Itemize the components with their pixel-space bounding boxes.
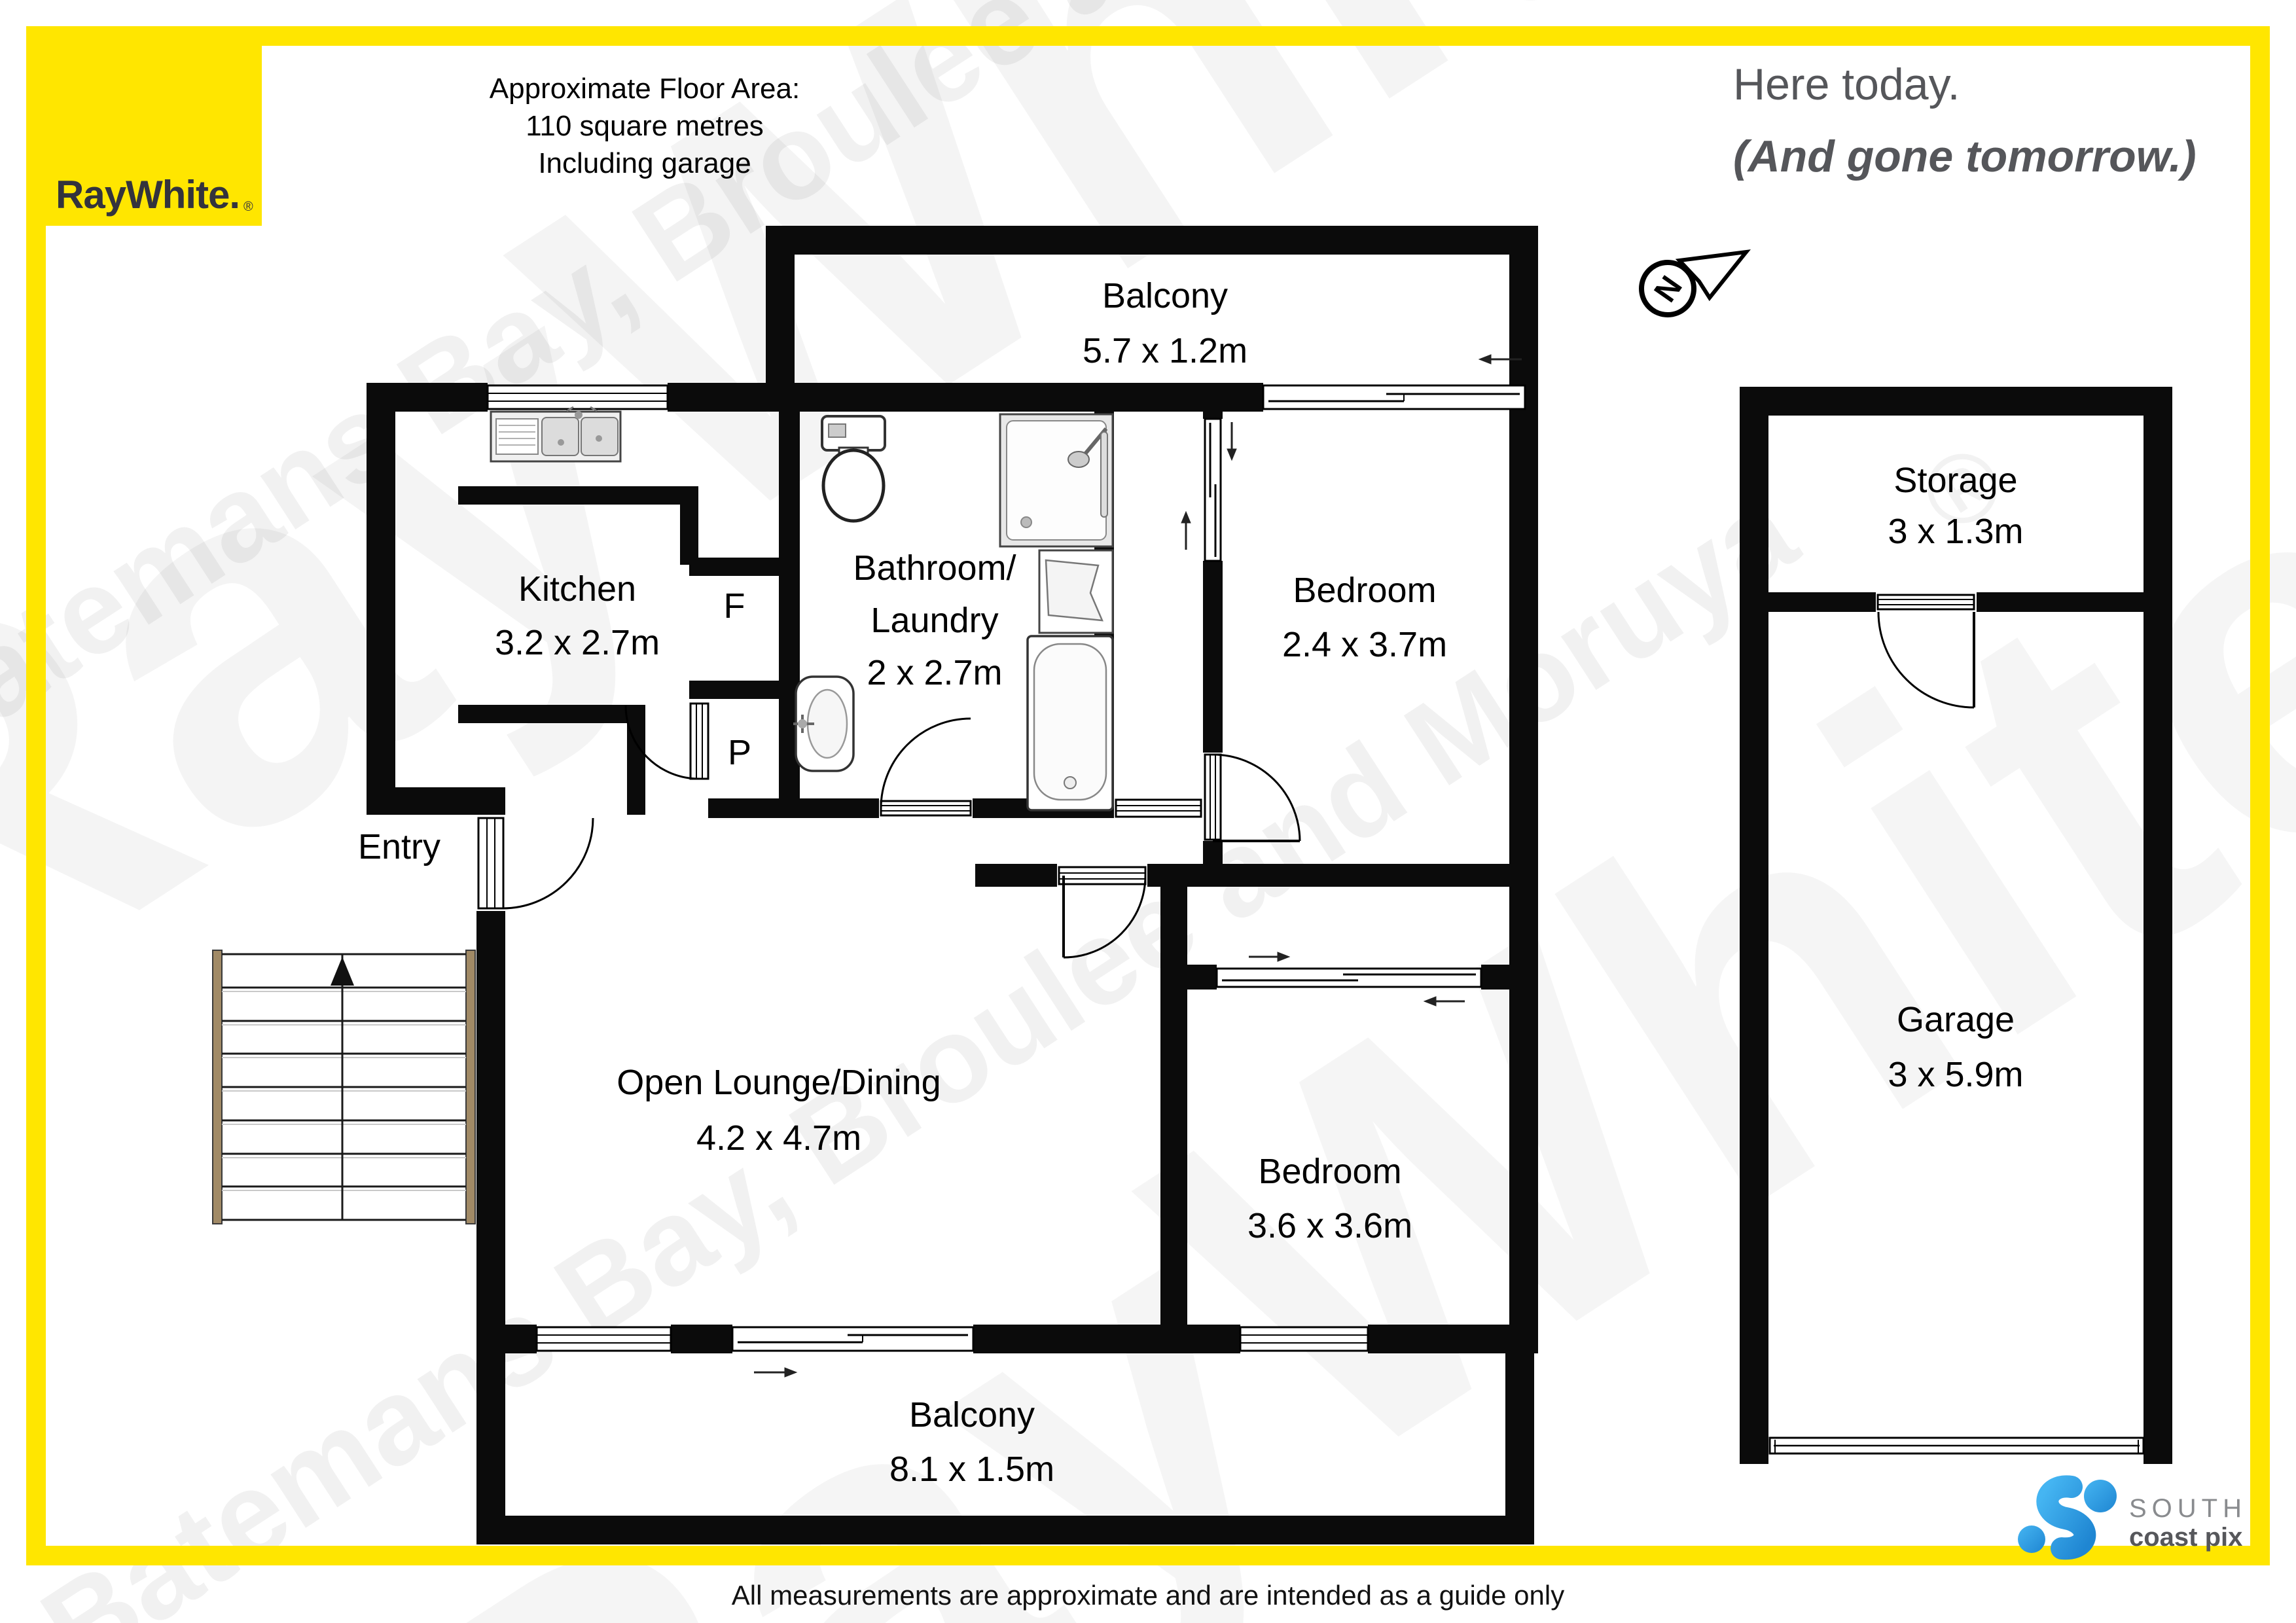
room-dims-kitchen: 3.2 x 2.7m <box>495 623 660 662</box>
wall <box>779 383 1263 412</box>
photo-credit-word1: SOUTH <box>2129 1494 2247 1523</box>
sliding-door-balcony-bottom-icon <box>732 1327 973 1351</box>
kitchen-sink-icon <box>491 407 620 461</box>
room-label-balcony-top: Balcony <box>1102 276 1228 315</box>
laundry-trough-icon <box>1039 550 1113 633</box>
disclaimer-text: All measurements are approximate and are… <box>732 1580 1564 1611</box>
room-dims-bedroom2: 3.6 x 3.6m <box>1247 1206 1412 1245</box>
wall <box>680 486 698 565</box>
wall <box>1509 404 1538 1353</box>
wall <box>800 798 879 818</box>
logo-s-icon <box>2047 1486 2085 1548</box>
wall <box>367 383 395 815</box>
wall <box>458 486 698 505</box>
wall <box>973 1325 1240 1353</box>
tagline-line1: Here today. <box>1733 60 1960 109</box>
south-coast-pix-logo: SOUTH coast pix <box>2018 1480 2247 1553</box>
ray-white-logo-text: RayWhite. <box>56 173 240 217</box>
wall <box>1147 864 1538 887</box>
sliding-robe-bedroom2-icon <box>1217 969 1481 987</box>
wall <box>708 798 779 818</box>
room-dims-bathroom: 2 x 2.7m <box>867 653 1002 692</box>
floor-area-note: Including garage <box>538 147 751 179</box>
room-dims-garage: 3 x 5.9m <box>1888 1055 2023 1094</box>
room-label-bathroom-2: Laundry <box>870 601 998 640</box>
room-label-bedroom2: Bedroom <box>1258 1152 1401 1191</box>
wall <box>766 226 1538 255</box>
wall <box>476 911 505 1353</box>
sliding-robe-bedroom1-icon <box>1205 419 1221 561</box>
room-dims-bedroom1: 2.4 x 3.7m <box>1282 625 1447 664</box>
compass-icon: N <box>1641 252 1746 315</box>
wall <box>1740 387 1768 1464</box>
wall <box>1740 1435 1768 1464</box>
shower-icon <box>1000 414 1113 546</box>
window-bedroom2-icon <box>1240 1327 1368 1351</box>
wall <box>975 864 1057 887</box>
wall <box>627 723 645 815</box>
wall <box>671 1325 732 1353</box>
room-dims-balcony-top: 5.7 x 1.2m <box>1083 331 1247 370</box>
stairs-up-arrow-icon <box>331 957 354 986</box>
wall <box>1481 965 1509 990</box>
garage-door-icon <box>1770 1438 2144 1454</box>
room-label-kitchen: Kitchen <box>518 569 636 609</box>
floor-area-label: Approximate Floor Area: <box>490 73 800 105</box>
room-label-storage: Storage <box>1893 461 2017 500</box>
entry-door-icon <box>478 818 593 908</box>
wall <box>476 1516 1534 1544</box>
wall <box>1505 1353 1534 1544</box>
arrow-right-robe-icon <box>1249 952 1289 961</box>
tagline-line2: (And gone tomorrow.) <box>1733 132 2197 181</box>
wall <box>1203 404 1223 419</box>
room-dims-lounge: 4.2 x 4.7m <box>696 1118 861 1158</box>
wall <box>1977 592 2172 612</box>
registered-mark: ® <box>243 200 253 214</box>
room-label-entry: Entry <box>358 827 440 866</box>
logo-dot-icon <box>2018 1525 2045 1553</box>
ray-white-logo: RayWhite. ® <box>36 26 262 226</box>
room-label-balcony-bottom: Balcony <box>909 1395 1035 1435</box>
photo-credit-word2: coast pix <box>2129 1523 2242 1552</box>
room-dims-balcony-bottom: 8.1 x 1.5m <box>889 1450 1054 1489</box>
sliding-door-balcony-top-icon <box>1263 385 1525 409</box>
fridge-label: F <box>724 586 745 626</box>
wall <box>476 1325 537 1353</box>
wall <box>2144 1435 2172 1464</box>
wall <box>1187 965 1217 990</box>
wall <box>1368 1325 1538 1353</box>
room-label-garage: Garage <box>1897 1000 2015 1039</box>
wall <box>1740 592 1876 612</box>
wall <box>1160 887 1187 1325</box>
wall <box>458 705 645 723</box>
wall <box>668 383 779 412</box>
stairs <box>213 950 475 1224</box>
wall <box>367 787 505 815</box>
bathroom-door-icon <box>881 719 971 815</box>
toilet-icon <box>822 416 885 521</box>
arrow-up-icon <box>1181 512 1191 550</box>
bathtub-icon <box>1028 636 1113 810</box>
room-label-bedroom1: Bedroom <box>1293 571 1436 610</box>
window-lounge-icon <box>537 1327 671 1351</box>
basin-icon <box>793 677 853 771</box>
floorplan-canvas: RayWhite RayWhite Batemans Bay, Broulee … <box>0 0 2296 1623</box>
wall <box>1203 561 1223 753</box>
room-label-bathroom-1: Bathroom/ <box>853 548 1016 588</box>
wall <box>2144 387 2172 1464</box>
arrow-down-icon <box>1227 422 1236 460</box>
tagline: Here today. (And gone tomorrow.) <box>1733 60 2197 181</box>
pantry-label: P <box>728 733 751 772</box>
linen-door-icon <box>1116 800 1201 817</box>
floorplan-page: RayWhite RayWhite Batemans Bay, Broulee … <box>0 0 2296 1623</box>
room-label-lounge: Open Lounge/Dining <box>617 1063 941 1102</box>
floor-area-value: 110 square metres <box>526 110 764 142</box>
room-dims-storage: 3 x 1.3m <box>1888 512 2023 551</box>
wall <box>1740 387 2172 416</box>
logo-dot-icon <box>2084 1480 2117 1512</box>
window-kitchen-icon <box>488 385 668 409</box>
